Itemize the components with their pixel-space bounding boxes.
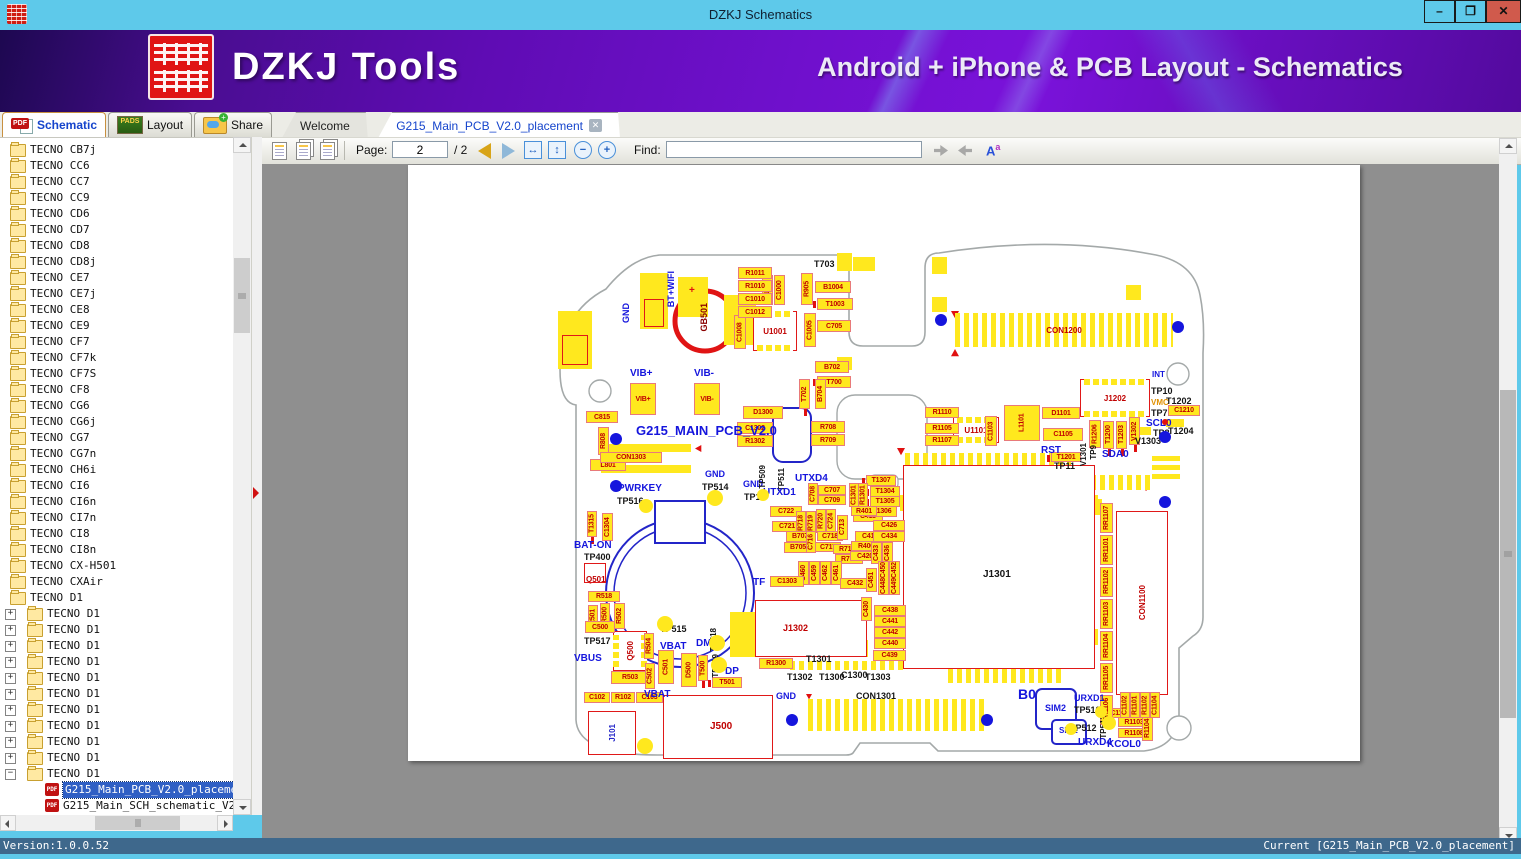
pcb-text-J1302: J1302 bbox=[783, 623, 808, 633]
maximize-button[interactable]: ❐ bbox=[1455, 0, 1486, 23]
tree-item-label[interactable]: G215_Main_SCH_schematic_V2.0 bbox=[63, 798, 233, 814]
pcb-chip-C442: C442 bbox=[874, 627, 906, 638]
tree-item-folder[interactable]: +TECNO D1 bbox=[0, 670, 233, 686]
pcb-text-VBAT: VBAT bbox=[644, 689, 670, 700]
zoom-in-icon[interactable]: + bbox=[598, 141, 616, 159]
tree-expander-icon[interactable]: − bbox=[5, 769, 16, 780]
pcb-connector bbox=[1152, 453, 1180, 479]
pcb-chip-D1101: D1101 bbox=[1042, 407, 1080, 419]
pcb-text-T1303: T1303 bbox=[865, 672, 891, 682]
tree-item-folder[interactable]: TECNO CC9 bbox=[0, 190, 233, 206]
pcb-plus-mark: + bbox=[689, 285, 695, 296]
pcb-red-outline bbox=[562, 335, 588, 365]
folder-icon bbox=[27, 736, 43, 749]
fit-width-icon[interactable]: ↔ bbox=[524, 141, 542, 159]
tree-item-folder[interactable]: +TECNO D1 bbox=[0, 686, 233, 702]
pcb-chip-C1104: C1104 bbox=[1150, 692, 1160, 718]
tree-vertical-scrollbar[interactable] bbox=[233, 137, 251, 815]
folder-icon bbox=[10, 160, 26, 173]
tree-item-label[interactable]: TECNO CE9 bbox=[30, 318, 90, 334]
ic-label: J1202 bbox=[1104, 394, 1126, 403]
tree-item-label[interactable]: TECNO CI8 bbox=[30, 526, 90, 542]
pcb-chip-C1008: C1008 bbox=[734, 315, 746, 349]
folder-icon bbox=[10, 544, 26, 557]
folder-icon bbox=[10, 320, 26, 333]
pcb-chip-R1010: R1010 bbox=[738, 280, 772, 292]
folder-icon bbox=[10, 144, 26, 157]
tree-item-folder[interactable]: TECNO CE9 bbox=[0, 318, 233, 334]
pcb-chip-C713: C713 bbox=[837, 515, 848, 540]
connector-label: CON1200 bbox=[1046, 326, 1082, 335]
pcb-chip-R709: R709 bbox=[811, 434, 845, 446]
pcb-blue-dot bbox=[1172, 321, 1184, 333]
pcb-pad bbox=[932, 297, 947, 312]
pcb-chip-CON1303: CON1303 bbox=[600, 452, 662, 463]
pcb-chip-RR1107: RR1107 bbox=[1100, 503, 1113, 533]
tree-item-folder[interactable]: TECNO CE8 bbox=[0, 302, 233, 318]
tree-item-label[interactable]: TECNO CF7S bbox=[30, 366, 96, 382]
tree-item-folder[interactable]: TECNO CE7j bbox=[0, 286, 233, 302]
pcb-text-VIB+: VIB+ bbox=[630, 368, 653, 379]
pcb-text-GND: GND bbox=[621, 303, 631, 323]
tree-item-label[interactable]: TECNO CI6n bbox=[30, 494, 96, 510]
folder-icon bbox=[10, 448, 26, 461]
tree-item-pdf[interactable]: PDFG215_Main_PCB_V2.0_placement bbox=[0, 782, 233, 798]
pdf-scroll-up-button[interactable] bbox=[1499, 138, 1517, 154]
pcb-chip-C502: C502 bbox=[645, 663, 655, 689]
fit-page-icon[interactable]: ↕ bbox=[548, 141, 566, 159]
tree-expander-icon[interactable]: + bbox=[5, 689, 16, 700]
copy-page-icon[interactable] bbox=[296, 142, 311, 160]
tree-item-folder[interactable]: +TECNO D1 bbox=[0, 654, 233, 670]
tree-item-label[interactable]: TECNO CB7j bbox=[30, 142, 96, 158]
pcb-text-TP9: TP9 bbox=[1089, 445, 1098, 460]
pcb-chip-C708: C708 bbox=[808, 483, 818, 505]
next-page-icon[interactable] bbox=[502, 143, 515, 159]
folder-icon bbox=[10, 464, 26, 477]
pcb-text-GND: GND bbox=[705, 469, 725, 479]
pcb-ic-CON1100: CON1100 bbox=[1116, 511, 1168, 695]
tree-horizontal-scrollbar[interactable] bbox=[0, 815, 233, 831]
pcb-text-BT+WIFI: BT+WIFI bbox=[666, 271, 676, 307]
pcb-pad bbox=[1126, 285, 1141, 300]
folder-icon bbox=[27, 768, 43, 781]
doc-tab-close-icon[interactable]: ✕ bbox=[589, 119, 602, 132]
font-size-icon[interactable]: Aa bbox=[986, 142, 1000, 158]
folder-icon bbox=[10, 384, 26, 397]
pcb-testpoint-dot bbox=[637, 738, 653, 754]
folder-icon bbox=[10, 560, 26, 573]
pcb-chip-R401: R401 bbox=[851, 506, 877, 516]
pcb-chip-C705: C705 bbox=[817, 320, 851, 332]
tree-expander-icon[interactable]: + bbox=[5, 753, 16, 764]
pcb-chip-RR1102: RR1102 bbox=[1100, 567, 1113, 597]
pcb-text-TP400: TP400 bbox=[584, 552, 611, 562]
tree-item-label[interactable]: TECNO CC6 bbox=[30, 158, 90, 174]
tree-item-folder[interactable]: TECNO CB7j bbox=[0, 142, 233, 158]
multi-page-icon[interactable] bbox=[320, 142, 335, 160]
pcb-testpoint-dot bbox=[711, 657, 727, 673]
tree-item-folder[interactable]: +TECNO D1 bbox=[0, 638, 233, 654]
status-bar: Version:1.0.0.52 Current [G215_Main_PCB_… bbox=[0, 838, 1521, 854]
pcb-placement-page: CON1200U1001U1101Q500J1202J101CON1100C81… bbox=[408, 165, 1360, 761]
tree-item-label[interactable]: TECNO D1 bbox=[47, 606, 100, 622]
tree-item-label[interactable]: TECNO CG6j bbox=[30, 414, 96, 430]
page-number-input[interactable] bbox=[392, 141, 448, 158]
tree-item-label[interactable]: TECNO CF7k bbox=[30, 350, 96, 366]
pcb-chip-C459: C459 bbox=[809, 561, 820, 585]
pcb-chip-RR1103: RR1103 bbox=[1100, 599, 1113, 629]
tree-item-label[interactable]: TECNO D1 bbox=[47, 686, 100, 702]
pcb-text-RST: RST bbox=[1041, 445, 1061, 456]
pcb-chip-R503: R503 bbox=[611, 671, 649, 684]
pcb-chip-R1110: R1110 bbox=[925, 407, 959, 418]
pcb-pad bbox=[853, 257, 875, 271]
tree-expander-icon[interactable]: + bbox=[5, 609, 16, 620]
tree-expander-icon[interactable]: + bbox=[5, 737, 16, 748]
doc-tab-active[interactable]: G215_Main_PCB_V2.0_placement✕ bbox=[378, 112, 620, 138]
pcb-chip-C439: C439 bbox=[873, 650, 906, 661]
find-previous-icon[interactable] bbox=[934, 145, 948, 156]
folder-icon bbox=[27, 672, 43, 685]
pcb-text-VBAT: VBAT bbox=[660, 641, 686, 652]
tree-scroll-right-button[interactable] bbox=[217, 815, 233, 831]
tab-label: Schematic bbox=[37, 118, 97, 132]
pcb-chip-C1103: C1103 bbox=[985, 416, 997, 446]
tree-item-folder[interactable]: TECNO CF7S bbox=[0, 366, 233, 382]
folder-icon bbox=[27, 688, 43, 701]
folder-icon bbox=[10, 208, 26, 221]
doc-tab-welcome[interactable]: Welcome bbox=[282, 112, 368, 138]
pcb-chip-R1104: R1104 bbox=[1142, 715, 1153, 741]
polarity-tick bbox=[813, 301, 816, 308]
tab-share[interactable]: Share bbox=[194, 112, 272, 137]
pcb-blue-dot bbox=[610, 433, 622, 445]
tree-item-label[interactable]: TECNO CF7 bbox=[30, 334, 90, 350]
tab-layout[interactable]: PADSLayout bbox=[108, 112, 192, 137]
tree-item-folder[interactable]: TECNO CI6n bbox=[0, 494, 233, 510]
tree-item-label[interactable]: TECNO CE8 bbox=[30, 302, 90, 318]
tree-item-folder[interactable]: TECNO CX-H501 bbox=[0, 558, 233, 574]
tree-item-folder[interactable]: TECNO CC6 bbox=[0, 158, 233, 174]
tree-item-folder[interactable]: TECNO CE7 bbox=[0, 270, 233, 286]
pcb-chip-C724: C724 bbox=[826, 509, 836, 533]
pcb-chip-D1300: D1300 bbox=[743, 406, 783, 419]
tree-item-folder[interactable]: TECNO CG7 bbox=[0, 430, 233, 446]
pcb-chip-C438: C438 bbox=[874, 605, 906, 616]
tree-item-label[interactable]: TECNO CD6 bbox=[30, 206, 90, 222]
tree-scroll-up-button[interactable] bbox=[233, 137, 251, 153]
tree-expander-icon[interactable]: + bbox=[5, 721, 16, 732]
folder-icon bbox=[10, 400, 26, 413]
tree-item-label[interactable]: TECNO CI8n bbox=[30, 542, 96, 558]
pcb-blue-dot bbox=[935, 314, 947, 326]
find-next-icon[interactable] bbox=[958, 145, 972, 156]
tree-item-folder[interactable]: +TECNO D1 bbox=[0, 734, 233, 750]
tree-item-label[interactable]: TECNO D1 bbox=[47, 638, 100, 654]
pcb-chip-C1303: C1303 bbox=[770, 576, 804, 587]
tree-item-folder[interactable]: TECNO CF7 bbox=[0, 334, 233, 350]
tree-item-label[interactable]: TECNO CE7j bbox=[30, 286, 96, 302]
pcb-text-G215MAINPCBV20: G215_MAIN_PCB_V2.0 bbox=[636, 423, 777, 438]
pcb-chip-C500: C500 bbox=[585, 621, 615, 633]
folder-icon bbox=[10, 304, 26, 317]
tree-item-label[interactable]: TECNO CX-H501 bbox=[30, 558, 116, 574]
pcb-chip-C430: C430 bbox=[861, 597, 872, 621]
pcb-chip-R1105: R1105 bbox=[925, 423, 959, 434]
tree-item-label[interactable]: TECNO CG6 bbox=[30, 398, 90, 414]
close-button[interactable]: ✕ bbox=[1486, 0, 1521, 23]
pcb-connector bbox=[808, 699, 988, 731]
ic-label: U1001 bbox=[763, 327, 787, 336]
pcb-text-T1202: T1202 bbox=[1166, 396, 1192, 406]
tree-scroll-left-button[interactable] bbox=[0, 815, 16, 831]
tree-item-label[interactable]: TECNO D1 bbox=[47, 766, 100, 782]
tree-item-folder[interactable]: TECNO CI8 bbox=[0, 526, 233, 542]
folder-icon bbox=[10, 352, 26, 365]
pcb-text-SIM2: SIM2 bbox=[1045, 703, 1066, 713]
pdf-toolbar: Page: / 2 ↔ ↕ − + Find: Aa bbox=[262, 137, 1521, 165]
tree-item-folder[interactable]: TECNO CF7k bbox=[0, 350, 233, 366]
tree-expander-icon[interactable]: + bbox=[5, 705, 16, 716]
tree-expander-icon[interactable]: + bbox=[5, 641, 16, 652]
tree-item-folder[interactable]: TECNO CD8 bbox=[0, 238, 233, 254]
pdf-file-icon: PDF bbox=[45, 783, 59, 796]
current-document-text: Current [G215_Main_PCB_V2.0_placement] bbox=[1263, 838, 1515, 854]
single-page-icon[interactable] bbox=[272, 142, 287, 160]
tree-item-folder[interactable]: +TECNO D1 bbox=[0, 750, 233, 766]
folder-icon bbox=[10, 256, 26, 269]
folder-icon bbox=[27, 624, 43, 637]
pcb-testpoint-dot bbox=[1065, 723, 1077, 735]
pcb-chip-R1107: R1107 bbox=[925, 435, 959, 446]
tree-item-label[interactable]: TECNO D1 bbox=[30, 590, 83, 606]
pcb-chip-T1203: T1203 bbox=[1116, 421, 1127, 449]
folder-icon bbox=[10, 288, 26, 301]
pcb-text-INT: INT bbox=[1152, 370, 1165, 379]
tree-scroll-down-button[interactable] bbox=[233, 799, 251, 815]
tree-item-folder[interactable]: TECNO CXAir bbox=[0, 574, 233, 590]
pcb-chip-C1102: C1102 bbox=[1120, 692, 1130, 718]
tree-item-folder[interactable]: TECNO CI6 bbox=[0, 478, 233, 494]
folder-icon bbox=[27, 640, 43, 653]
pcb-connector-con1200: CON1200 bbox=[955, 313, 1173, 347]
pcb-testpoint-dot bbox=[657, 616, 673, 632]
tab-bar: SchematicPADSLayoutShareWelcomeG215_Main… bbox=[0, 112, 1521, 138]
pcb-chip-C426: C426 bbox=[873, 520, 905, 531]
tree-item-label[interactable]: TECNO CH6i bbox=[30, 462, 96, 478]
pcb-chip-C441: C441 bbox=[874, 616, 906, 627]
pcb-blue-dot bbox=[1159, 431, 1171, 443]
pcb-chip-C451: C451 bbox=[866, 568, 877, 592]
tree-item-label[interactable]: TECNO CC7 bbox=[30, 174, 90, 190]
pcb-chip-C1210: C1210 bbox=[1168, 405, 1200, 416]
pcb-text-TF: TF bbox=[753, 577, 765, 588]
pcb-chip-C501: C501 bbox=[658, 650, 674, 684]
tree-item-label[interactable]: TECNO CI6 bbox=[30, 478, 90, 494]
pcb-text-UTXD4: UTXD4 bbox=[795, 473, 828, 484]
tree-item-folder[interactable]: +TECNO D1 bbox=[0, 718, 233, 734]
polarity-tick bbox=[1047, 455, 1050, 462]
folder-icon bbox=[10, 176, 26, 189]
folder-icon bbox=[27, 656, 43, 669]
pdf-vertical-scrollbar[interactable] bbox=[1499, 138, 1517, 843]
pcb-chip-B704: B704 bbox=[815, 379, 826, 409]
model-tree: TECNO CB7jTECNO CC6TECNO CC7TECNO CC9TEC… bbox=[0, 137, 233, 816]
folder-icon bbox=[27, 608, 43, 621]
tab-schematic[interactable]: Schematic bbox=[2, 112, 106, 137]
brand-logo-icon bbox=[148, 34, 214, 100]
tree-expander-icon[interactable]: + bbox=[5, 673, 16, 684]
pcb-chip-C709: C709 bbox=[818, 495, 846, 505]
page-label: Page: bbox=[356, 143, 387, 157]
pcb-chip-T1307: T1307 bbox=[866, 475, 896, 486]
pcb-chip-T500: T500 bbox=[698, 655, 708, 681]
tree-item-folder[interactable]: TECNO D1 bbox=[0, 590, 233, 606]
tree-item-pdf[interactable]: PDFG215_Main_SCH_schematic_V2.0 bbox=[0, 798, 233, 814]
pcb-text-TP7: TP7 bbox=[1151, 408, 1168, 418]
folder-icon bbox=[27, 752, 43, 765]
tree-item-label[interactable]: TECNO D1 bbox=[47, 702, 100, 718]
tree-scrollbar-thumb[interactable] bbox=[234, 258, 250, 333]
tree-item-label[interactable]: TECNO CD8j bbox=[30, 254, 96, 270]
tree-item-folder[interactable]: TECNO CG6j bbox=[0, 414, 233, 430]
pdf-viewport[interactable]: CON1200U1001U1101Q500J1202J101CON1100C81… bbox=[262, 164, 1499, 838]
pcb-chip-C434: C434 bbox=[873, 531, 905, 542]
pcb-text-PWRKEY: PWRKEY bbox=[618, 483, 662, 494]
tree-item-folder[interactable]: TECNO CG6 bbox=[0, 398, 233, 414]
pcb-chip-D500: D500 bbox=[681, 653, 697, 687]
tree-item-folder[interactable]: TECNO CG7n bbox=[0, 446, 233, 462]
pcb-chip-R1300: R1300 bbox=[759, 658, 793, 669]
find-label: Find: bbox=[634, 143, 661, 157]
pcb-ic-J101: J101 bbox=[588, 711, 636, 755]
tree-item-label[interactable]: TECNO CE7 bbox=[30, 270, 90, 286]
tree-item-folder[interactable]: TECNO CI7n bbox=[0, 510, 233, 526]
tree-item-label[interactable]: TECNO D1 bbox=[47, 718, 100, 734]
pcb-pad bbox=[730, 612, 755, 657]
find-input[interactable] bbox=[666, 141, 922, 158]
prev-page-icon[interactable] bbox=[478, 143, 491, 159]
pcb-chip-VIB-: VIB- bbox=[694, 383, 720, 415]
pcb-red-dot bbox=[1162, 419, 1168, 425]
tree-expander-icon[interactable]: + bbox=[5, 657, 16, 668]
pcb-text-T703: T703 bbox=[814, 259, 835, 269]
tree-item-label[interactable]: TECNO D1 bbox=[47, 750, 100, 766]
tree-item-label[interactable]: G215_Main_PCB_V2.0_placement bbox=[63, 782, 233, 798]
pcb-text-CON1301: CON1301 bbox=[856, 691, 896, 701]
pdf-scrollbar-thumb[interactable] bbox=[1500, 390, 1516, 718]
folder-icon bbox=[10, 512, 26, 525]
pcb-text-SDA0: SDA0 bbox=[1102, 449, 1129, 460]
tree-item-folder[interactable]: −TECNO D1 bbox=[0, 766, 233, 782]
pcb-chip-C448C450: C448C450 bbox=[878, 561, 889, 595]
window-title: DZKJ Schematics bbox=[0, 0, 1521, 30]
tree-item-label[interactable]: TECNO CF8 bbox=[30, 382, 90, 398]
pcb-testpoint-dot bbox=[757, 489, 769, 501]
minimize-button[interactable]: – bbox=[1424, 0, 1455, 23]
pcb-chip-C102: C102 bbox=[584, 692, 610, 703]
tree-hscrollbar-thumb[interactable] bbox=[95, 816, 180, 830]
tree-item-folder[interactable]: TECNO CD6 bbox=[0, 206, 233, 222]
pcb-chip-T702: T702 bbox=[799, 379, 810, 409]
tree-item-label[interactable]: TECNO CG7n bbox=[30, 446, 96, 462]
pcb-chip-RR1104: RR1104 bbox=[1100, 631, 1113, 661]
folder-icon bbox=[10, 528, 26, 541]
doc-tab-label: G215_Main_PCB_V2.0_placement bbox=[396, 119, 583, 133]
pdf-file-icon: PDF bbox=[45, 799, 59, 812]
tree-item-label[interactable]: TECNO CI7n bbox=[30, 510, 96, 526]
pcb-chip-R502: R502 bbox=[614, 603, 625, 629]
tree-item-folder[interactable]: +TECNO D1 bbox=[0, 702, 233, 718]
page-total: / 2 bbox=[454, 143, 467, 157]
tree-item-label[interactable]: TECNO CD7 bbox=[30, 222, 90, 238]
tree-item-folder[interactable]: +TECNO D1 bbox=[0, 622, 233, 638]
tab-label: Share bbox=[231, 118, 263, 132]
pcb-blue-dot bbox=[981, 714, 993, 726]
tree-item-label[interactable]: TECNO D1 bbox=[47, 622, 100, 638]
pcb-blue-dot bbox=[610, 480, 622, 492]
pcb-blue-dot bbox=[1159, 496, 1171, 508]
tree-item-label[interactable]: TECNO CG7 bbox=[30, 430, 90, 446]
tree-item-folder[interactable]: +TECNO D1 bbox=[0, 606, 233, 622]
tree-item-folder[interactable]: TECNO CF8 bbox=[0, 382, 233, 398]
folder-icon bbox=[10, 224, 26, 237]
tree-item-label[interactable]: TECNO D1 bbox=[47, 670, 100, 686]
pcb-text-VBUS: VBUS bbox=[574, 653, 602, 664]
pcb-chip-B1004: B1004 bbox=[815, 281, 851, 293]
tree-item-label[interactable]: TECNO CD8 bbox=[30, 238, 90, 254]
tree-item-folder[interactable]: TECNO CD7 bbox=[0, 222, 233, 238]
tree-item-folder[interactable]: TECNO CD8j bbox=[0, 254, 233, 270]
ic-label: Q500 bbox=[626, 641, 635, 661]
zoom-out-icon[interactable]: − bbox=[574, 141, 592, 159]
pcb-text-J1301: J1301 bbox=[983, 569, 1011, 580]
pcb-text-T1302: T1302 bbox=[787, 672, 813, 682]
pads-icon: PADS bbox=[117, 116, 143, 134]
pdf-icon bbox=[11, 118, 33, 133]
pcb-chip-C440: C440 bbox=[874, 638, 906, 649]
pcb-chip-R708: R708 bbox=[811, 421, 845, 433]
pcb-chip-C462: C462 bbox=[820, 561, 831, 585]
tree-item-folder[interactable]: TECNO CH6i bbox=[0, 462, 233, 478]
pcb-chip-VIB+: VIB+ bbox=[630, 383, 656, 415]
tree-item-label[interactable]: TECNO D1 bbox=[47, 734, 100, 750]
pcb-text-J500: J500 bbox=[710, 721, 732, 732]
pcb-testpoint-dot bbox=[639, 499, 653, 513]
pcb-testpoint-dot bbox=[709, 635, 725, 651]
tree-item-folder[interactable]: TECNO CC7 bbox=[0, 174, 233, 190]
pcb-text-GB501: GB501 bbox=[699, 303, 709, 332]
folder-icon bbox=[10, 576, 26, 589]
pcb-chip-T1200: T1200 bbox=[1103, 421, 1114, 449]
pcb-ic-box bbox=[903, 465, 1095, 669]
pcb-chip-R1011: R1011 bbox=[738, 267, 772, 279]
tree-item-label[interactable]: TECNO CXAir bbox=[30, 574, 103, 590]
pcb-text-T1301: T1301 bbox=[806, 654, 832, 664]
tree-expander-icon[interactable]: + bbox=[5, 625, 16, 636]
tree-item-label[interactable]: TECNO D1 bbox=[47, 654, 100, 670]
pcb-chip-T1003: T1003 bbox=[817, 298, 853, 310]
tree-item-folder[interactable]: TECNO CI8n bbox=[0, 542, 233, 558]
folder-icon bbox=[27, 720, 43, 733]
pcb-chip-R1301: R1301 bbox=[858, 483, 868, 507]
ic-label: CON1100 bbox=[1138, 585, 1147, 620]
pcb-pad bbox=[932, 257, 947, 274]
tree-item-label[interactable]: TECNO CC9 bbox=[30, 190, 90, 206]
pcb-text-VIB-: VIB- bbox=[694, 368, 714, 379]
version-text: Version:1.0.0.52 bbox=[3, 838, 109, 854]
